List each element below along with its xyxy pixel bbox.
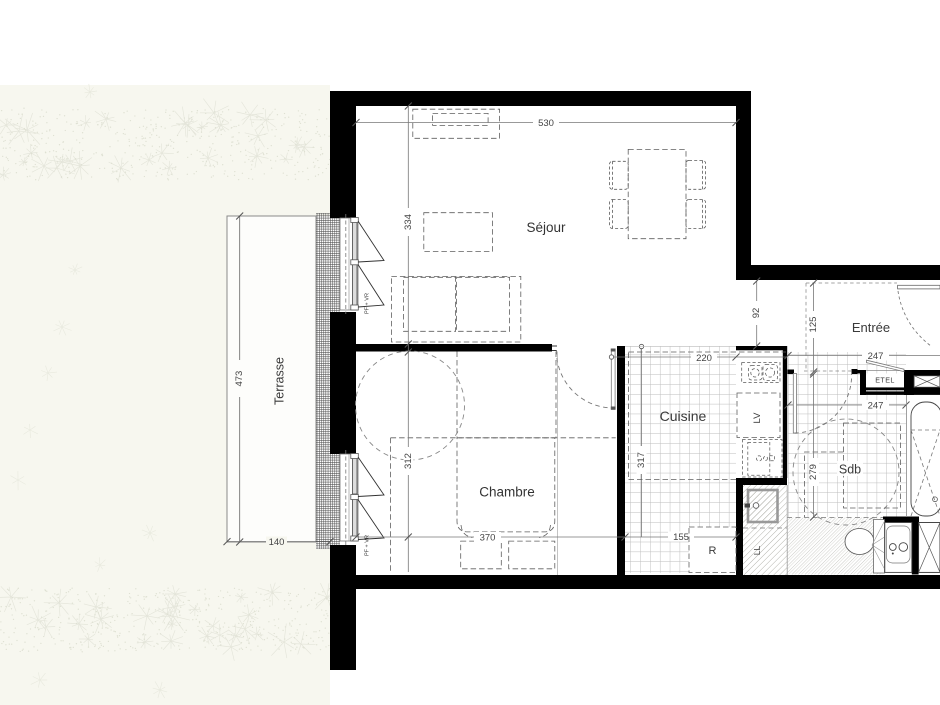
svg-text:247: 247 [868, 401, 884, 412]
svg-text:334: 334 [403, 214, 414, 230]
svg-text:155: 155 [673, 532, 689, 543]
svg-text:R: R [709, 545, 717, 557]
svg-text:220: 220 [696, 353, 712, 364]
svg-text:Séjour: Séjour [526, 220, 566, 235]
svg-text:317: 317 [636, 452, 647, 468]
svg-text:92: 92 [751, 308, 762, 319]
svg-text:Cuisine: Cuisine [660, 408, 707, 424]
svg-text:Sdb: Sdb [839, 463, 861, 477]
svg-text:Entrée: Entrée [852, 320, 890, 335]
svg-text:Terrasse: Terrasse [272, 357, 286, 405]
svg-text:PF + VR: PF + VR [365, 293, 371, 314]
svg-text:473: 473 [234, 371, 245, 387]
svg-text:PF + VR: PF + VR [365, 535, 371, 556]
svg-text:ETEL: ETEL [875, 376, 895, 385]
svg-text:125: 125 [808, 317, 819, 333]
svg-text:LL: LL [752, 546, 762, 556]
svg-text:370: 370 [480, 533, 496, 544]
svg-text:140: 140 [269, 537, 285, 548]
svg-text:530: 530 [538, 118, 554, 129]
svg-text:Chambre: Chambre [479, 485, 535, 500]
svg-text:247: 247 [868, 351, 884, 362]
svg-text:LV: LV [752, 412, 763, 424]
svg-text:312: 312 [403, 453, 414, 469]
svg-text:279: 279 [808, 464, 819, 480]
